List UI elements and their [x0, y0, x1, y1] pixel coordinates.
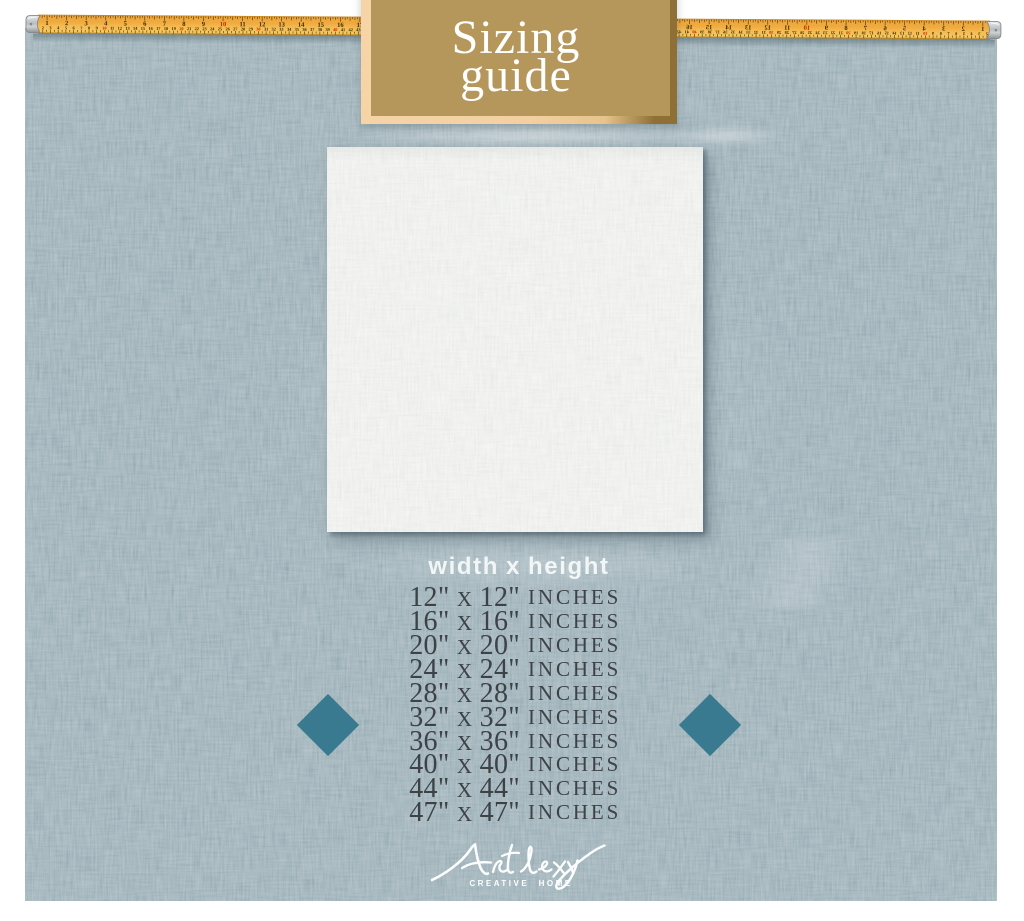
- svg-text:9: 9: [96, 26, 98, 31]
- svg-text:29: 29: [249, 27, 253, 32]
- svg-text:12: 12: [118, 26, 122, 31]
- svg-text:23: 23: [202, 26, 206, 31]
- svg-text:23: 23: [823, 30, 827, 35]
- svg-text:42: 42: [349, 27, 353, 32]
- svg-text:15: 15: [885, 31, 889, 36]
- svg-text:32: 32: [754, 30, 758, 35]
- svg-text:8: 8: [940, 31, 942, 36]
- svg-text:39: 39: [700, 29, 704, 34]
- svg-text:11: 11: [916, 31, 920, 36]
- svg-text:3: 3: [49, 25, 51, 30]
- svg-text:5: 5: [963, 31, 965, 36]
- svg-text:41: 41: [685, 29, 689, 34]
- svg-text:1: 1: [45, 20, 48, 27]
- svg-text:15: 15: [141, 26, 145, 31]
- svg-text:19: 19: [854, 30, 858, 35]
- svg-text:39: 39: [325, 27, 329, 32]
- svg-text:10: 10: [923, 31, 927, 36]
- svg-text:40: 40: [692, 29, 696, 34]
- svg-text:33: 33: [746, 30, 750, 35]
- svg-text:28: 28: [241, 26, 245, 31]
- svg-text:13: 13: [900, 31, 904, 36]
- svg-text:21: 21: [839, 30, 843, 35]
- svg-text:9: 9: [932, 31, 934, 36]
- svg-text:31: 31: [264, 27, 268, 32]
- svg-text:1: 1: [981, 26, 984, 33]
- svg-text:42: 42: [677, 29, 681, 34]
- svg-text:40: 40: [333, 27, 337, 32]
- svg-text:20: 20: [179, 26, 183, 31]
- svg-text:29: 29: [777, 30, 781, 35]
- svg-text:21: 21: [187, 26, 191, 31]
- svg-text:30: 30: [256, 27, 260, 32]
- svg-text:8: 8: [88, 25, 90, 30]
- svg-text:33: 33: [279, 27, 283, 32]
- svg-text:18: 18: [164, 26, 168, 31]
- svg-text:2: 2: [42, 25, 44, 30]
- svg-text:25: 25: [808, 30, 812, 35]
- svg-text:2: 2: [986, 31, 988, 36]
- svg-text:35: 35: [731, 30, 735, 35]
- svg-text:28: 28: [785, 30, 789, 35]
- svg-text:38: 38: [318, 27, 322, 32]
- svg-text:31: 31: [762, 30, 766, 35]
- svg-text:10: 10: [102, 26, 106, 31]
- svg-text:11: 11: [110, 26, 114, 31]
- svg-text:35: 35: [295, 27, 299, 32]
- svg-text:22: 22: [831, 30, 835, 35]
- svg-text:18: 18: [862, 30, 866, 35]
- svg-text:30: 30: [769, 30, 773, 35]
- svg-text:19: 19: [172, 26, 176, 31]
- svg-text:41: 41: [341, 27, 345, 32]
- svg-text:22: 22: [195, 26, 199, 31]
- svg-text:32: 32: [272, 27, 276, 32]
- svg-text:25: 25: [218, 26, 222, 31]
- svg-text:13: 13: [125, 26, 129, 31]
- svg-text:12: 12: [908, 31, 912, 36]
- svg-text:38: 38: [708, 29, 712, 34]
- svg-text:3: 3: [978, 31, 980, 36]
- svg-text:20: 20: [846, 30, 850, 35]
- svg-text:5: 5: [65, 25, 67, 30]
